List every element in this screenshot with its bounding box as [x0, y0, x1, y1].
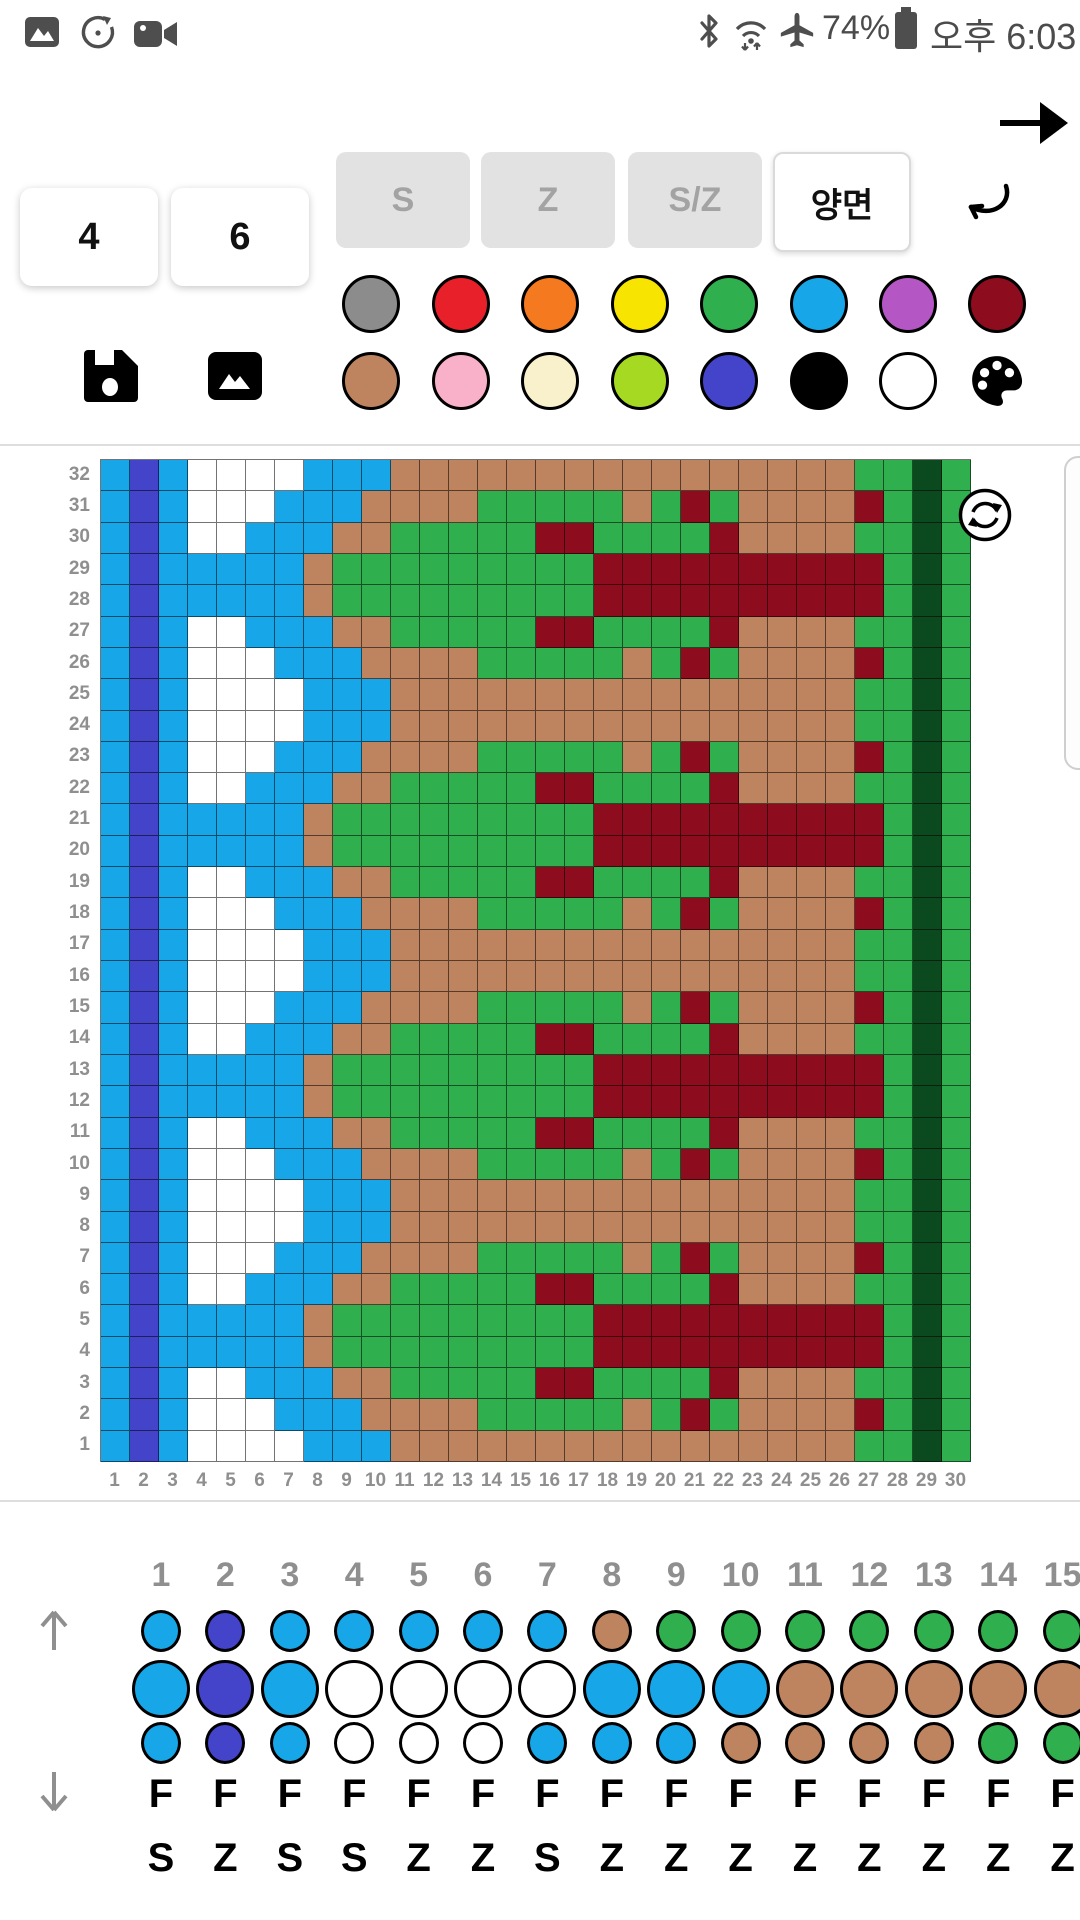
grid-cell[interactable] [623, 1118, 652, 1149]
grid-cell[interactable] [130, 1368, 159, 1399]
grid-cell[interactable] [130, 742, 159, 773]
grid-cell[interactable] [710, 1337, 739, 1368]
grid-cell[interactable] [710, 585, 739, 616]
grid-cell[interactable] [101, 1399, 130, 1430]
grid-cell[interactable] [304, 1118, 333, 1149]
grid-cell[interactable] [942, 1305, 971, 1336]
grid-cell[interactable] [826, 1212, 855, 1243]
grid-cell[interactable] [768, 1055, 797, 1086]
grid-cell[interactable] [913, 1274, 942, 1305]
grid-cell[interactable] [217, 961, 246, 992]
grid-cell[interactable] [623, 836, 652, 867]
grid-cell[interactable] [855, 1086, 884, 1117]
grid-cell[interactable] [623, 1305, 652, 1336]
grid-cell[interactable] [362, 1431, 391, 1462]
grid-cell[interactable] [478, 1180, 507, 1211]
grid-cell[interactable] [652, 1086, 681, 1117]
grid-cell[interactable] [913, 554, 942, 585]
grid-cell[interactable] [478, 1368, 507, 1399]
grid-cell[interactable] [884, 867, 913, 898]
grid-cell[interactable] [362, 1399, 391, 1430]
grid-cell[interactable] [710, 1243, 739, 1274]
color-swatch[interactable] [611, 352, 669, 410]
grid-cell[interactable] [942, 804, 971, 835]
grid-cell[interactable] [913, 961, 942, 992]
grid-cell[interactable] [391, 1368, 420, 1399]
grid-cell[interactable] [536, 1024, 565, 1055]
grid-cell[interactable] [101, 961, 130, 992]
grid-cell[interactable] [159, 648, 188, 679]
grid-cell[interactable] [478, 648, 507, 679]
grid-cell[interactable] [710, 961, 739, 992]
grid-cell[interactable] [826, 1024, 855, 1055]
grid-cell[interactable] [507, 961, 536, 992]
grid-cell[interactable] [681, 523, 710, 554]
grid-cell[interactable] [333, 1243, 362, 1274]
grid-cell[interactable] [507, 867, 536, 898]
grid-cell[interactable] [217, 1399, 246, 1430]
grid-cell[interactable] [246, 742, 275, 773]
grid-cell[interactable] [420, 867, 449, 898]
grid-cell[interactable] [739, 961, 768, 992]
grid-cell[interactable] [478, 1212, 507, 1243]
grid-cell[interactable] [826, 554, 855, 585]
grid-cell[interactable] [652, 523, 681, 554]
grid-cell[interactable] [797, 1180, 826, 1211]
grid-cell[interactable] [362, 836, 391, 867]
grid-cell[interactable] [884, 1180, 913, 1211]
color-swatch[interactable] [432, 275, 490, 333]
grid-cell[interactable] [101, 1368, 130, 1399]
grid-cell[interactable] [565, 773, 594, 804]
grid-cell[interactable] [275, 992, 304, 1023]
grid-cell[interactable] [536, 1305, 565, 1336]
grid-cell[interactable] [217, 1212, 246, 1243]
grid-cell[interactable] [478, 1274, 507, 1305]
grid-cell[interactable] [681, 1212, 710, 1243]
grid-cell[interactable] [420, 1086, 449, 1117]
grid-cell[interactable] [768, 867, 797, 898]
grid-cell[interactable] [449, 1368, 478, 1399]
grid-cell[interactable] [594, 930, 623, 961]
grid-cell[interactable] [797, 648, 826, 679]
grid-cell[interactable] [391, 1212, 420, 1243]
grid-cell[interactable] [536, 898, 565, 929]
grid-cell[interactable] [275, 523, 304, 554]
grid-cell[interactable] [507, 898, 536, 929]
grid-cell[interactable] [449, 1274, 478, 1305]
grid-cell[interactable] [159, 711, 188, 742]
grid-cell[interactable] [942, 1243, 971, 1274]
grid-cell[interactable] [362, 1180, 391, 1211]
grid-cell[interactable] [855, 742, 884, 773]
grid-cell[interactable] [333, 460, 362, 491]
grid-cell[interactable] [362, 742, 391, 773]
grid-cell[interactable] [391, 1243, 420, 1274]
grid-cell[interactable] [652, 1180, 681, 1211]
grid-cell[interactable] [449, 554, 478, 585]
grid-cell[interactable] [420, 1368, 449, 1399]
grid-cell[interactable] [826, 1055, 855, 1086]
grid-cell[interactable] [449, 898, 478, 929]
grid-cell[interactable] [855, 585, 884, 616]
f-label[interactable]: F [580, 1772, 644, 1817]
grid-cell[interactable] [188, 554, 217, 585]
grid-cell[interactable] [362, 491, 391, 522]
down-arrow-icon[interactable] [30, 1768, 78, 1821]
grid-cell[interactable] [275, 1149, 304, 1180]
grid-cell[interactable] [101, 491, 130, 522]
grid-cell[interactable] [710, 1118, 739, 1149]
grid-cell[interactable] [507, 617, 536, 648]
grid-cell[interactable] [855, 1243, 884, 1274]
grid-cell[interactable] [101, 679, 130, 710]
grid-cell[interactable] [884, 648, 913, 679]
grid-cell[interactable] [739, 460, 768, 491]
grid-cell[interactable] [130, 1431, 159, 1462]
grid-cell[interactable] [304, 1243, 333, 1274]
grid-cell[interactable] [768, 1243, 797, 1274]
grid-cell[interactable] [652, 617, 681, 648]
grid-cell[interactable] [797, 1431, 826, 1462]
grid-cell[interactable] [797, 930, 826, 961]
grid-cell[interactable] [304, 1149, 333, 1180]
grid-cell[interactable] [565, 867, 594, 898]
grid-cell[interactable] [565, 679, 594, 710]
grid-cell[interactable] [681, 867, 710, 898]
grid-cell[interactable] [188, 773, 217, 804]
f-label[interactable]: F [451, 1772, 515, 1817]
twist-label[interactable]: Z [580, 1836, 644, 1881]
f-label[interactable]: F [515, 1772, 579, 1817]
grid-cell[interactable] [101, 1431, 130, 1462]
grid-cell[interactable] [159, 1243, 188, 1274]
grid-cell[interactable] [913, 930, 942, 961]
grid-cell[interactable] [710, 930, 739, 961]
grid-cell[interactable] [275, 836, 304, 867]
grid-cell[interactable] [681, 1368, 710, 1399]
f-label[interactable]: F [709, 1772, 773, 1817]
grid-cell[interactable] [739, 992, 768, 1023]
grid-cell[interactable] [101, 1337, 130, 1368]
stitch-count-field-1[interactable]: 4 [20, 188, 158, 286]
grid-cell[interactable] [913, 585, 942, 616]
grid-cell[interactable] [188, 523, 217, 554]
grid-cell[interactable] [507, 554, 536, 585]
twist-label[interactable]: Z [837, 1836, 901, 1881]
grid-cell[interactable] [710, 1305, 739, 1336]
grid-cell[interactable] [681, 930, 710, 961]
grid-cell[interactable] [449, 961, 478, 992]
grid-cell[interactable] [130, 1024, 159, 1055]
grid-cell[interactable] [101, 804, 130, 835]
grid-cell[interactable] [623, 1149, 652, 1180]
grid-cell[interactable] [420, 1180, 449, 1211]
palette-icon[interactable] [968, 352, 1026, 415]
grid-cell[interactable] [246, 1431, 275, 1462]
grid-cell[interactable] [739, 711, 768, 742]
grid-cell[interactable] [304, 554, 333, 585]
grid-cell[interactable] [797, 836, 826, 867]
grid-cell[interactable] [188, 1274, 217, 1305]
grid-cell[interactable] [652, 1274, 681, 1305]
grid-cell[interactable] [768, 711, 797, 742]
grid-cell[interactable] [710, 1055, 739, 1086]
grid-cell[interactable] [362, 679, 391, 710]
grid-cell[interactable] [420, 1055, 449, 1086]
grid-cell[interactable] [565, 711, 594, 742]
grid-cell[interactable] [594, 961, 623, 992]
grid-cell[interactable] [913, 460, 942, 491]
grid-cell[interactable] [623, 992, 652, 1023]
grid-cell[interactable] [826, 1274, 855, 1305]
grid-cell[interactable] [652, 898, 681, 929]
grid-cell[interactable] [304, 1212, 333, 1243]
grid-cell[interactable] [304, 1305, 333, 1336]
grid-cell[interactable] [101, 1274, 130, 1305]
grid-cell[interactable] [826, 804, 855, 835]
grid-cell[interactable] [797, 1337, 826, 1368]
grid-cell[interactable] [913, 1149, 942, 1180]
grid-cell[interactable] [710, 992, 739, 1023]
twist-label[interactable]: S [258, 1836, 322, 1881]
grid-cell[interactable] [681, 491, 710, 522]
grid-cell[interactable] [739, 1337, 768, 1368]
grid-cell[interactable] [304, 648, 333, 679]
grid-cell[interactable] [623, 1368, 652, 1399]
grid-cell[interactable] [449, 773, 478, 804]
grid-cell[interactable] [913, 742, 942, 773]
grid-cell[interactable] [768, 836, 797, 867]
grid-cell[interactable] [623, 523, 652, 554]
grid-cell[interactable] [855, 961, 884, 992]
grid-cell[interactable] [768, 961, 797, 992]
grid-cell[interactable] [594, 585, 623, 616]
grid-cell[interactable] [159, 1431, 188, 1462]
grid-cell[interactable] [420, 460, 449, 491]
grid-cell[interactable] [710, 1086, 739, 1117]
grid-cell[interactable] [420, 804, 449, 835]
grid-cell[interactable] [362, 1368, 391, 1399]
grid-cell[interactable] [246, 1305, 275, 1336]
grid-cell[interactable] [478, 554, 507, 585]
grid-cell[interactable] [826, 742, 855, 773]
grid-cell[interactable] [652, 1431, 681, 1462]
grid-cell[interactable] [536, 1086, 565, 1117]
grid-cell[interactable] [362, 1305, 391, 1336]
grid-cell[interactable] [884, 1368, 913, 1399]
grid-cell[interactable] [565, 742, 594, 773]
grid-cell[interactable] [246, 1212, 275, 1243]
grid-cell[interactable] [478, 961, 507, 992]
grid-cell[interactable] [710, 460, 739, 491]
grid-cell[interactable] [391, 585, 420, 616]
color-swatch[interactable] [790, 275, 848, 333]
grid-cell[interactable] [159, 804, 188, 835]
grid-cell[interactable] [565, 585, 594, 616]
grid-cell[interactable] [739, 1118, 768, 1149]
grid-cell[interactable] [391, 648, 420, 679]
grid-cell[interactable] [217, 1243, 246, 1274]
grid-cell[interactable] [565, 1243, 594, 1274]
grid-cell[interactable] [275, 773, 304, 804]
grid-cell[interactable] [623, 1180, 652, 1211]
grid-cell[interactable] [855, 711, 884, 742]
grid-cell[interactable] [536, 1274, 565, 1305]
grid-cell[interactable] [275, 961, 304, 992]
grid-cell[interactable] [913, 523, 942, 554]
grid-cell[interactable] [536, 1118, 565, 1149]
grid-cell[interactable] [478, 1337, 507, 1368]
grid-cell[interactable] [710, 648, 739, 679]
grid-cell[interactable] [565, 1086, 594, 1117]
grid-cell[interactable] [826, 1368, 855, 1399]
grid-cell[interactable] [913, 679, 942, 710]
grid-cell[interactable] [333, 1274, 362, 1305]
grid-cell[interactable] [333, 804, 362, 835]
grid-cell[interactable] [623, 773, 652, 804]
grid-cell[interactable] [739, 1368, 768, 1399]
grid-cell[interactable] [826, 1243, 855, 1274]
grid-cell[interactable] [681, 648, 710, 679]
grid-cell[interactable] [536, 836, 565, 867]
grid-cell[interactable] [855, 1399, 884, 1430]
grid-cell[interactable] [391, 773, 420, 804]
grid-cell[interactable] [681, 773, 710, 804]
grid-cell[interactable] [565, 1212, 594, 1243]
grid-cell[interactable] [565, 1149, 594, 1180]
grid-cell[interactable] [159, 585, 188, 616]
grid-cell[interactable] [768, 773, 797, 804]
grid-cell[interactable] [855, 1337, 884, 1368]
grid-cell[interactable] [246, 992, 275, 1023]
grid-cell[interactable] [333, 585, 362, 616]
grid-cell[interactable] [188, 711, 217, 742]
grid-cell[interactable] [826, 836, 855, 867]
grid-cell[interactable] [681, 836, 710, 867]
grid-cell[interactable] [884, 1118, 913, 1149]
grid-cell[interactable] [159, 1086, 188, 1117]
grid-cell[interactable] [594, 648, 623, 679]
grid-cell[interactable] [565, 1274, 594, 1305]
grid-cell[interactable] [623, 1274, 652, 1305]
grid-cell[interactable] [710, 836, 739, 867]
grid-cell[interactable] [449, 1337, 478, 1368]
grid-cell[interactable] [942, 961, 971, 992]
grid-cell[interactable] [420, 1149, 449, 1180]
color-swatch[interactable] [611, 275, 669, 333]
undo-icon[interactable] [958, 176, 1014, 231]
grid-cell[interactable] [246, 1399, 275, 1430]
grid-cell[interactable] [420, 491, 449, 522]
grid-cell[interactable] [217, 648, 246, 679]
f-label[interactable]: F [1031, 1772, 1080, 1817]
grid-cell[interactable] [449, 1024, 478, 1055]
grid-cell[interactable] [652, 1337, 681, 1368]
grid-cell[interactable] [420, 679, 449, 710]
grid-cell[interactable] [536, 648, 565, 679]
grid-cell[interactable] [913, 1180, 942, 1211]
grid-cell[interactable] [246, 648, 275, 679]
grid-cell[interactable] [565, 1399, 594, 1430]
grid-cell[interactable] [130, 1180, 159, 1211]
grid-cell[interactable] [420, 1243, 449, 1274]
grid-cell[interactable] [362, 867, 391, 898]
grid-cell[interactable] [101, 742, 130, 773]
grid-cell[interactable] [333, 617, 362, 648]
grid-cell[interactable] [942, 679, 971, 710]
grid-cell[interactable] [333, 836, 362, 867]
grid-cell[interactable] [797, 742, 826, 773]
grid-cell[interactable] [826, 1149, 855, 1180]
grid-cell[interactable] [362, 617, 391, 648]
grid-cell[interactable] [739, 898, 768, 929]
grid-cell[interactable] [304, 836, 333, 867]
grid-cell[interactable] [507, 1243, 536, 1274]
grid-cell[interactable] [826, 867, 855, 898]
grid-cell[interactable] [913, 1055, 942, 1086]
grid-cell[interactable] [304, 679, 333, 710]
grid-cell[interactable] [362, 773, 391, 804]
grid-cell[interactable] [739, 867, 768, 898]
grid-cell[interactable] [710, 867, 739, 898]
grid-cell[interactable] [942, 898, 971, 929]
grid-cell[interactable] [333, 1337, 362, 1368]
grid-cell[interactable] [797, 992, 826, 1023]
grid-cell[interactable] [391, 992, 420, 1023]
grid-cell[interactable] [333, 523, 362, 554]
grid-cell[interactable] [536, 773, 565, 804]
grid-cell[interactable] [855, 1180, 884, 1211]
grid-cell[interactable] [594, 773, 623, 804]
grid-cell[interactable] [507, 1086, 536, 1117]
grid-cell[interactable] [275, 1086, 304, 1117]
f-label[interactable]: F [193, 1772, 257, 1817]
rotate-icon[interactable] [957, 487, 1013, 548]
grid-cell[interactable] [246, 773, 275, 804]
grid-cell[interactable] [449, 804, 478, 835]
grid-cell[interactable] [739, 773, 768, 804]
grid-cell[interactable] [449, 648, 478, 679]
grid-cell[interactable] [710, 1212, 739, 1243]
grid-cell[interactable] [275, 898, 304, 929]
grid-cell[interactable] [188, 1399, 217, 1430]
grid-cell[interactable] [652, 1024, 681, 1055]
grid-cell[interactable] [884, 961, 913, 992]
grid-cell[interactable] [507, 1149, 536, 1180]
grid-cell[interactable] [275, 1305, 304, 1336]
forward-arrow-icon[interactable] [998, 96, 1070, 155]
grid-cell[interactable] [826, 1337, 855, 1368]
grid-cell[interactable] [855, 898, 884, 929]
grid-cell[interactable] [188, 961, 217, 992]
grid-cell[interactable] [768, 679, 797, 710]
grid-cell[interactable] [884, 1274, 913, 1305]
grid-cell[interactable] [101, 523, 130, 554]
grid-cell[interactable] [623, 491, 652, 522]
grid-cell[interactable] [536, 554, 565, 585]
grid-cell[interactable] [536, 1212, 565, 1243]
grid-cell[interactable] [420, 1024, 449, 1055]
grid-cell[interactable] [333, 961, 362, 992]
grid-cell[interactable] [855, 1212, 884, 1243]
grid-cell[interactable] [275, 648, 304, 679]
grid-cell[interactable] [420, 1337, 449, 1368]
grid-cell[interactable] [710, 804, 739, 835]
grid-cell[interactable] [478, 1431, 507, 1462]
grid-cell[interactable] [130, 1149, 159, 1180]
grid-cell[interactable] [188, 1305, 217, 1336]
